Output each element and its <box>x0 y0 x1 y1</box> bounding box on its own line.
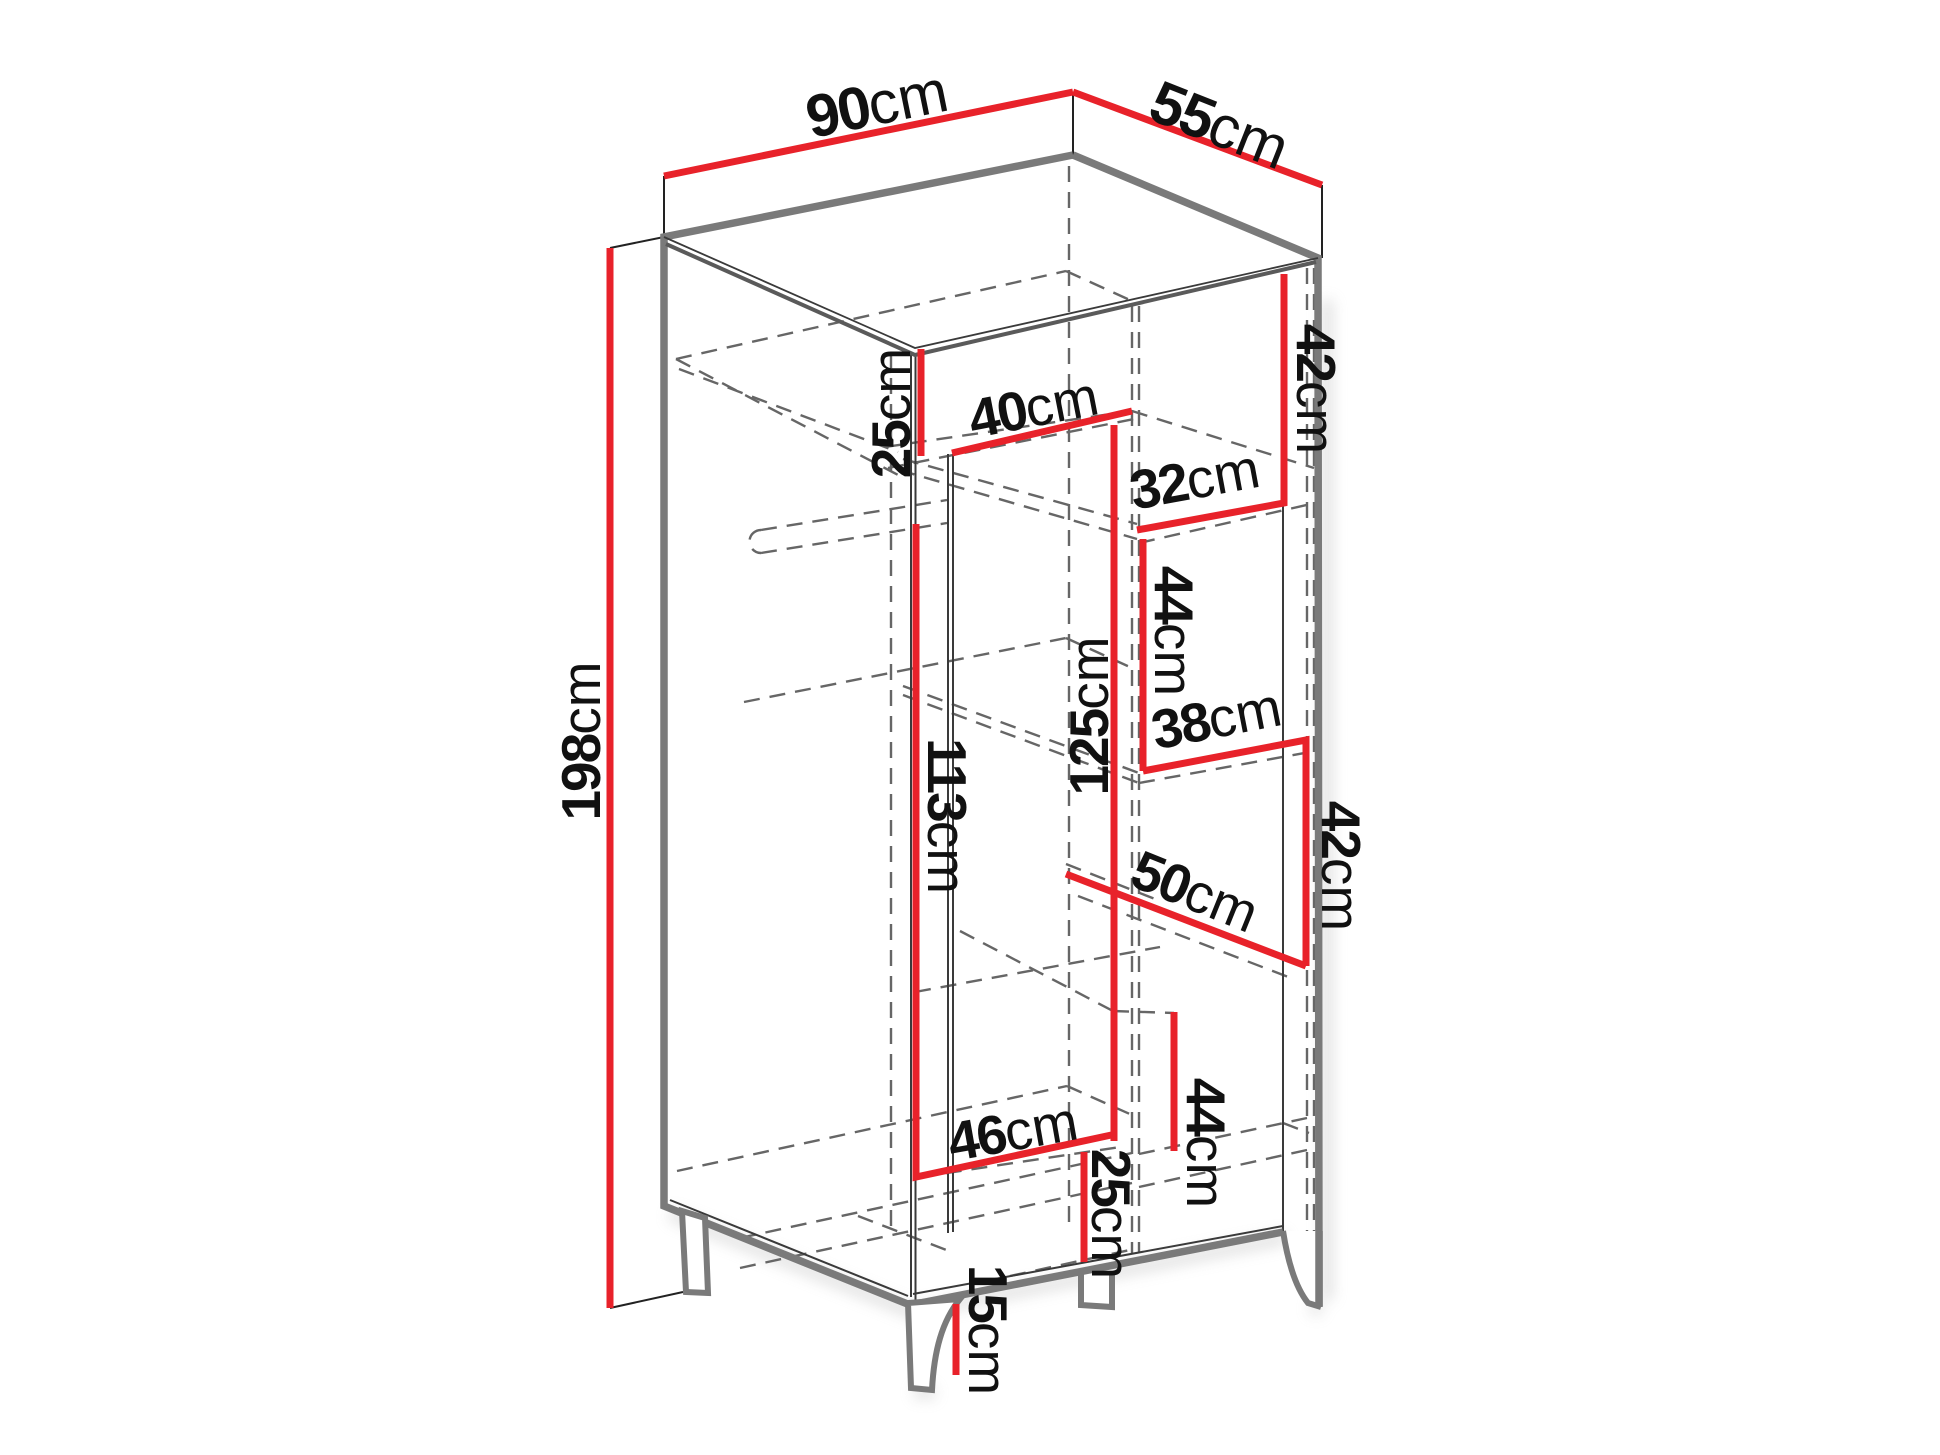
svg-text:25cm: 25cm <box>1080 1149 1142 1280</box>
svg-text:44cm: 44cm <box>1175 1078 1237 1209</box>
svg-text:42cm: 42cm <box>1285 324 1347 455</box>
svg-text:198cm: 198cm <box>550 661 612 820</box>
svg-text:15cm: 15cm <box>957 1265 1019 1396</box>
svg-text:125cm: 125cm <box>1058 636 1120 795</box>
svg-text:42cm: 42cm <box>1310 801 1372 932</box>
svg-text:25cm: 25cm <box>860 348 922 479</box>
svg-text:113cm: 113cm <box>916 738 978 894</box>
svg-text:44cm: 44cm <box>1143 566 1205 697</box>
